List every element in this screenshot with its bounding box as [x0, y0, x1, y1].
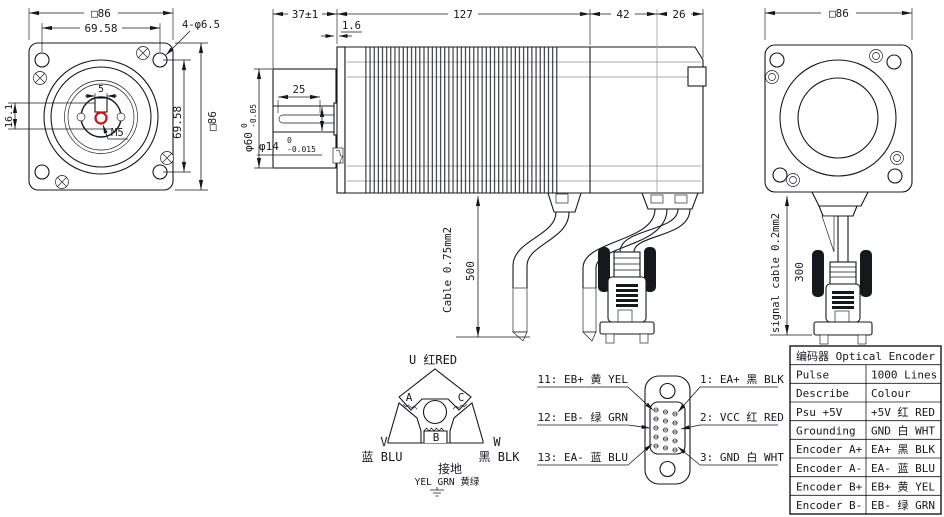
label-shaft-tap: M5: [111, 127, 124, 139]
svg-text:φ14: φ14: [259, 140, 279, 153]
table-cell: 1000 Lines: [871, 369, 937, 382]
table-cell: Encoder B-: [796, 499, 862, 512]
dim-cap-length: 26: [672, 8, 685, 21]
dim-encoder-length: 42: [616, 8, 629, 21]
table-cell: GND 白 WHT: [871, 424, 935, 438]
svg-text:0: 0: [240, 123, 249, 128]
ground-color-label: YEL GRN 黄绿: [415, 476, 480, 488]
motor-drawing-page: □86 69.58 4-φ6.5 5 16.1 M5 69.58 □86: [0, 0, 944, 517]
table-cell: Grounding: [796, 425, 856, 438]
winding-diagram: U 红RED A C B V 蓝 BLU W 黑 BLK 接地 YEL GRN …: [362, 352, 521, 496]
screw-icon: [137, 47, 150, 60]
ground-symbol-icon: [430, 487, 444, 496]
ground-label: 接地: [438, 461, 462, 476]
dim-bolt-circle: 69.58: [84, 22, 117, 35]
phase-u-label: U 红RED: [409, 352, 457, 367]
connector-pinout: 11: EB+ 黄 YEL 12: EB- 绿 GRN 13: EA- 蓝 BL…: [537, 372, 784, 484]
table-title: 编码器 Optical Encoder: [796, 349, 935, 363]
dim-body-length: 127: [453, 8, 473, 21]
strain-flap: [822, 216, 834, 252]
phase-v-color: 蓝 BLU: [362, 450, 403, 464]
label-corner-holes: 4-φ6.5: [182, 19, 220, 31]
db-connector: [812, 250, 872, 344]
table-cell: Pulse: [796, 369, 829, 382]
stator-right-pole: [450, 403, 483, 443]
phase-w-label: W: [493, 435, 501, 449]
db15-screw-hole: [660, 462, 675, 477]
stator-left-pole: [388, 403, 421, 443]
coil-a-label: A: [406, 391, 413, 404]
label-plate: [333, 148, 343, 164]
encoder-table: 编码器 Optical Encoder Pulse 1000 Lines Des…: [790, 346, 941, 514]
dim-bolt-circle-side: 69.58: [171, 106, 184, 139]
technical-drawing: □86 69.58 4-φ6.5 5 16.1 M5 69.58 □86: [0, 0, 944, 517]
screw-icon: [161, 152, 174, 165]
db15-screw-hole: [660, 384, 675, 399]
cable-gland: [812, 192, 868, 206]
svg-text:-0.05: -0.05: [249, 104, 258, 128]
pinout-label-1: 1: EA+ 黑 BLK: [700, 373, 784, 386]
db-connector: [598, 247, 656, 343]
table-cell: Encoder B+: [796, 481, 863, 494]
pinout-label-3: 3: GND 白 WHT: [700, 450, 784, 464]
screw-icon: [787, 174, 800, 187]
front-keyway: [95, 98, 107, 112]
mount-hole: [888, 169, 902, 183]
screw-icon: [34, 72, 47, 85]
strain-pin: [812, 250, 824, 297]
rear-stub: [688, 67, 706, 86]
svg-text:0: 0: [287, 136, 292, 145]
encoder-cable: [620, 209, 690, 252]
label-power-cable: Cable 0.75mm2: [441, 227, 454, 313]
rear-view: □86 300 signal cable 0.2mm2: [765, 7, 912, 344]
table-cell: Encoder A+: [796, 443, 863, 456]
dim-signal-cable-length: 300: [793, 262, 806, 282]
dim-pilot-depth: 1.6: [342, 20, 361, 32]
phase-v-label: V: [380, 435, 387, 449]
table-cell: EB- 绿 GRN: [871, 498, 935, 512]
svg-text:φ60: φ60: [242, 132, 255, 152]
dim-key-width: 5: [98, 84, 104, 95]
coil-c-label: C: [458, 391, 465, 404]
dim-square-size-side: □86: [206, 111, 219, 131]
cable-gland: [642, 193, 698, 209]
screw-icon: [766, 71, 779, 84]
dim-rear-size: □86: [829, 7, 849, 20]
front-small-hole-right: [117, 113, 125, 121]
dim-shaft-length: 37±1: [292, 8, 319, 21]
cooling-fins: [365, 47, 560, 193]
side-view: 37±1 127 42 26 1.6 25 φ60 0 -0.05 φ14 0 …: [240, 8, 706, 343]
phase-w-color: 黑 BLK: [479, 450, 521, 464]
screw-icon: [870, 50, 883, 63]
pinout-label-2: 2: VCC 红 RED: [700, 411, 784, 424]
front-small-hole-left: [77, 113, 85, 121]
front-view: □86 69.58 4-φ6.5 5 16.1 M5 69.58 □86: [4, 7, 220, 190]
dim-key-height: 16.1: [4, 104, 15, 128]
table-cell: Psu +5V: [796, 406, 843, 419]
mount-hole: [770, 53, 784, 67]
screw-icon: [56, 176, 69, 189]
table-cell: EA- 蓝 BLU: [871, 462, 935, 475]
mount-hole: [35, 165, 49, 179]
table-cell: EA+ 黑 BLK: [871, 443, 935, 456]
table-cell: +5V 红 RED: [871, 406, 935, 419]
table-cell: EB+ 黄 YEL: [871, 480, 935, 494]
table-cell: Encoder A-: [796, 462, 862, 475]
front-shaft-tap-hole: [96, 113, 107, 124]
power-cable-bundle: [513, 212, 569, 341]
pinout-label-12: 12: EB- 绿 GRN: [538, 410, 628, 424]
dim-square-size: □86: [91, 7, 111, 20]
front-plate: [337, 47, 345, 193]
mount-hole: [35, 53, 49, 67]
dim-pilot-dia: φ60 0 -0.05: [240, 104, 258, 152]
strain-pin: [860, 250, 872, 297]
label-signal-cable: signal cable 0.2mm2: [770, 213, 782, 333]
mount-hole: [887, 55, 901, 69]
pinout-label-11: 11: EB+ 黄 YEL: [538, 372, 629, 386]
rotor-circle: [424, 401, 447, 424]
mount-hole: [773, 168, 787, 182]
table-cell: Describe: [796, 387, 849, 400]
dim-power-cable-length: 500: [464, 261, 477, 281]
coil-b-label: B: [433, 431, 440, 444]
dim-key-length: 25: [293, 84, 306, 96]
svg-text:-0.015: -0.015: [287, 145, 316, 154]
pinout-label-13: 13: EA- 蓝 BLU: [538, 451, 628, 464]
screw-icon: [891, 152, 904, 165]
table-cell: Colour: [871, 387, 911, 400]
